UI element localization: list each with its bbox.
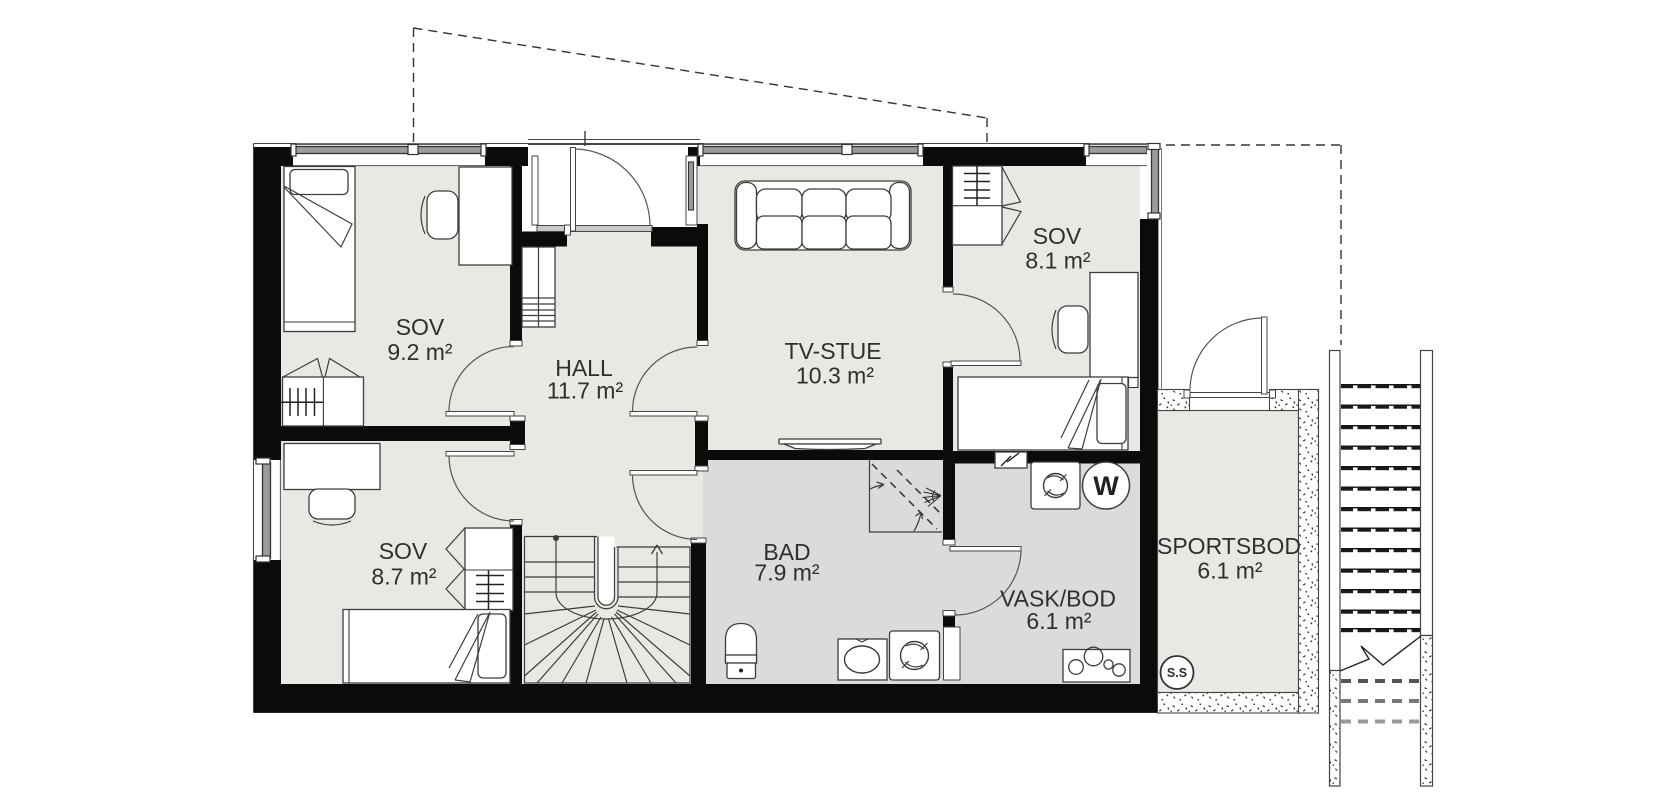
svg-text:SPORTSBOD: SPORTSBOD	[1157, 533, 1301, 559]
svg-text:SOV: SOV	[379, 538, 428, 564]
svg-text:8.1 m²: 8.1 m²	[1025, 248, 1091, 274]
svg-text:11.7 m²: 11.7 m²	[547, 378, 624, 404]
svg-text:6.1 m²: 6.1 m²	[1026, 608, 1092, 634]
svg-text:SOV: SOV	[1033, 223, 1082, 249]
svg-text:S.S: S.S	[1167, 666, 1187, 680]
svg-text:10.3 m²: 10.3 m²	[796, 363, 874, 389]
svg-text:TV-STUE: TV-STUE	[784, 338, 881, 364]
svg-text:W: W	[1093, 471, 1119, 501]
svg-text:SOV: SOV	[396, 314, 445, 340]
svg-text:7.9 m²: 7.9 m²	[754, 560, 820, 586]
svg-text:8.7 m²: 8.7 m²	[371, 564, 437, 590]
svg-text:6.1 m²: 6.1 m²	[1197, 558, 1263, 584]
svg-text:9.2 m²: 9.2 m²	[387, 339, 453, 365]
